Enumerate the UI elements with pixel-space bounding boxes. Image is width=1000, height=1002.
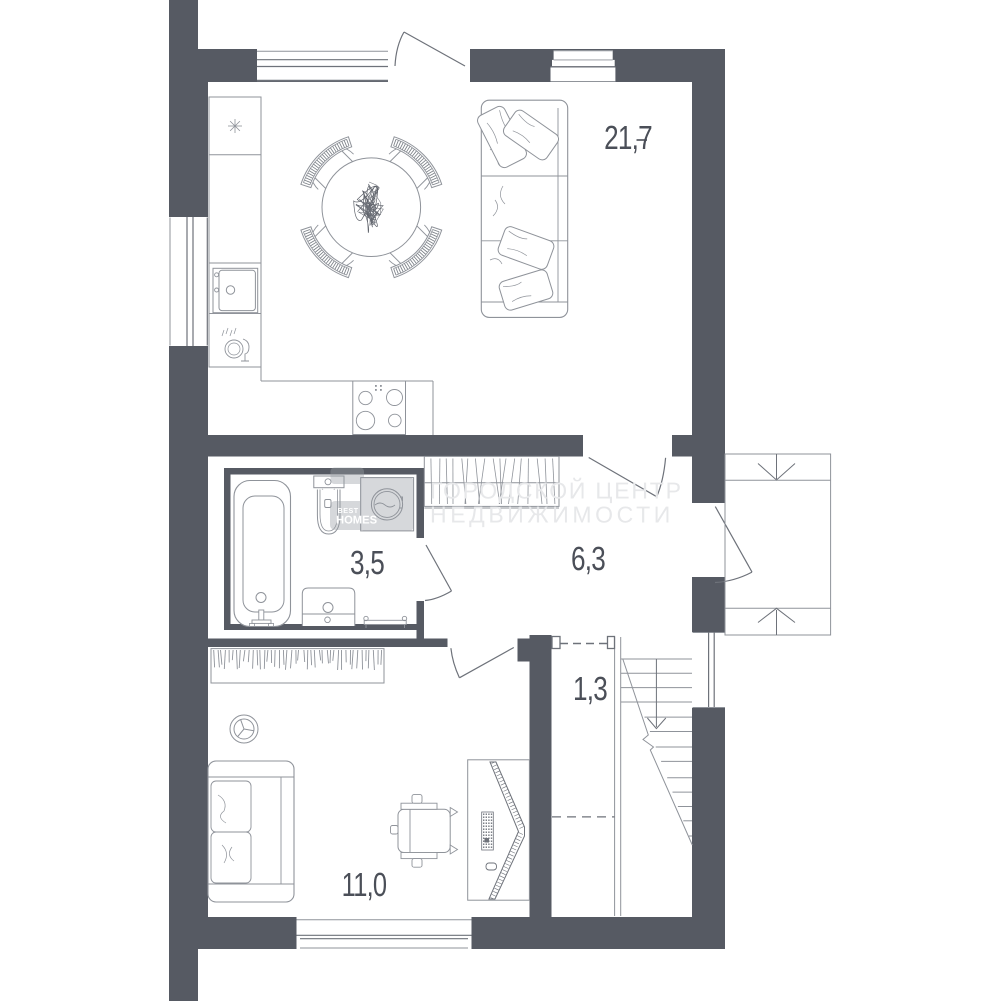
svg-text:21,7: 21,7 [604,120,652,157]
svg-text:6,3: 6,3 [571,541,605,578]
svg-text:НЕДВИЖИМОСТИ: НЕДВИЖИМОСТИ [430,502,674,528]
svg-text:3,5: 3,5 [350,545,384,582]
svg-text:11,0: 11,0 [342,867,387,904]
svg-text:HOMES: HOMES [336,515,378,527]
svg-text:ГОРОДСКОЙ ЦЕНТР: ГОРОДСКОЙ ЦЕНТР [430,478,683,504]
svg-text:1,3: 1,3 [573,671,607,708]
